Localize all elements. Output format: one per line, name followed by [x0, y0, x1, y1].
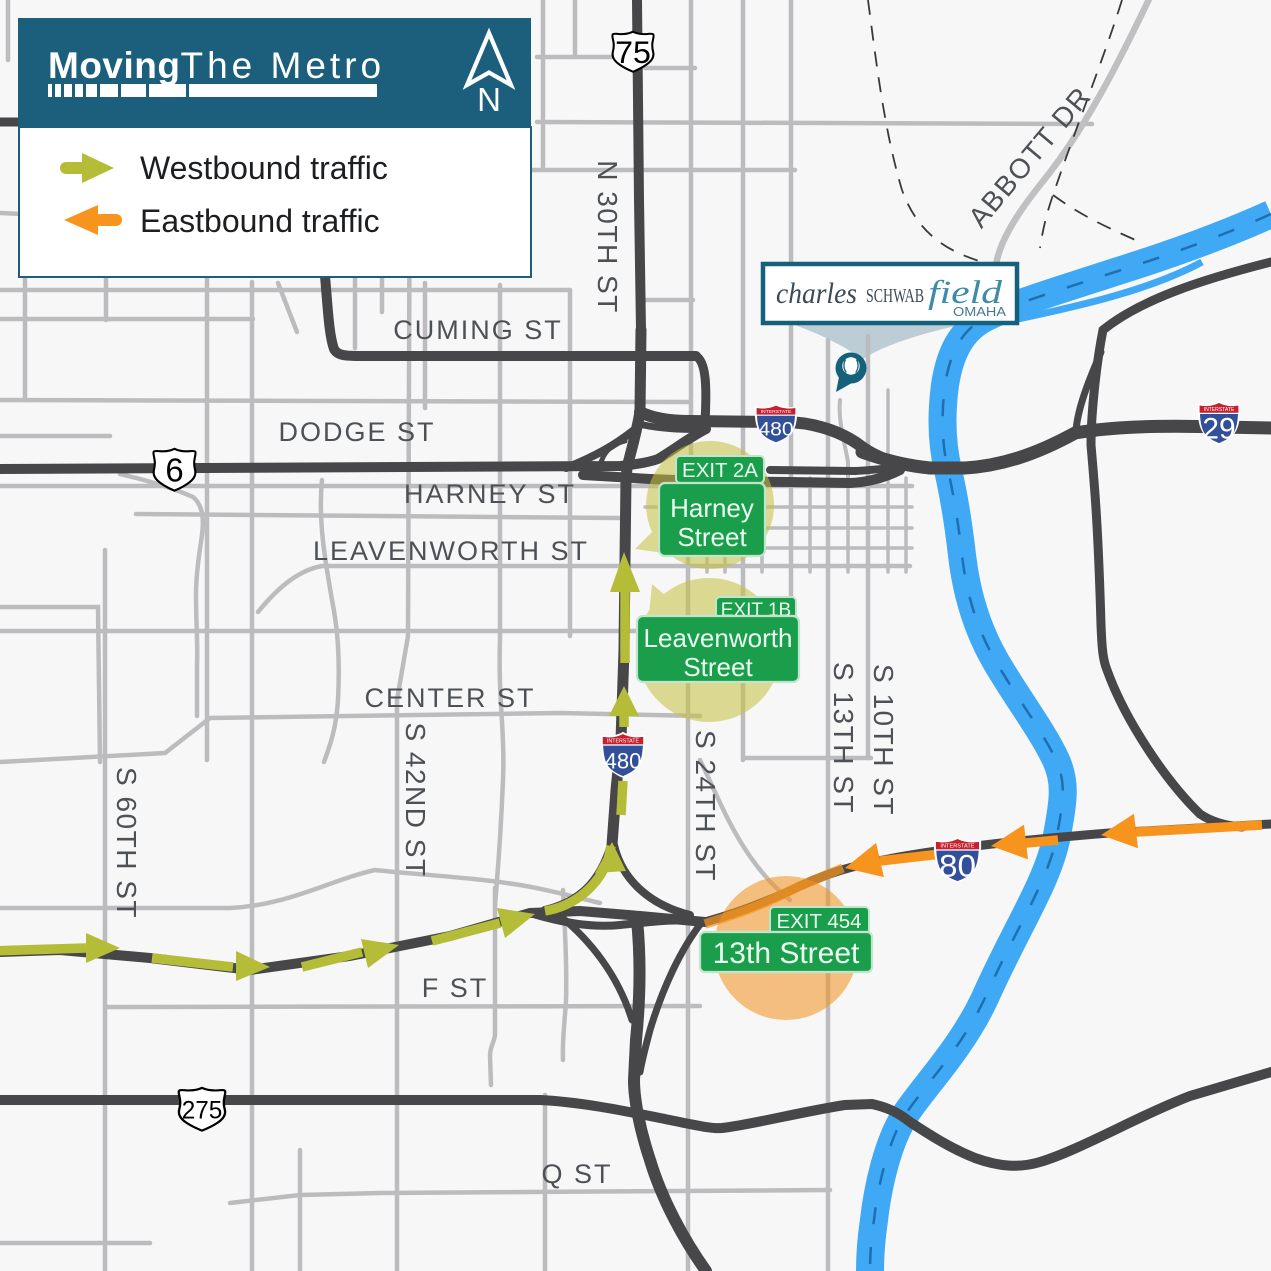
- svg-text:HARNEY ST: HARNEY ST: [404, 479, 576, 509]
- svg-text:DODGE ST: DODGE ST: [278, 417, 435, 447]
- svg-text:13th Street: 13th Street: [713, 937, 860, 970]
- svg-text:EXIT 454: EXIT 454: [776, 910, 861, 933]
- svg-text:OMAHA: OMAHA: [953, 304, 1006, 319]
- svg-text:S 10TH ST: S 10TH ST: [868, 664, 899, 816]
- svg-text:Street: Street: [677, 522, 747, 552]
- svg-text:S 60TH ST: S 60TH ST: [111, 767, 142, 919]
- svg-text:480: 480: [758, 419, 793, 440]
- svg-text:29: 29: [1202, 413, 1235, 446]
- svg-text:275: 275: [182, 1096, 223, 1125]
- svg-text:Q ST: Q ST: [541, 1159, 612, 1189]
- svg-text:SCHWAB: SCHWAB: [866, 285, 924, 307]
- svg-text:S 13TH ST: S 13TH ST: [828, 662, 859, 814]
- svg-text:S 42ND ST: S 42ND ST: [400, 722, 431, 877]
- svg-text:N 30TH ST: N 30TH ST: [592, 160, 623, 314]
- svg-text:MovingThe Metro: MovingThe Metro: [48, 45, 385, 86]
- svg-text:Leavenworth: Leavenworth: [644, 623, 793, 653]
- svg-text:charles: charles: [776, 277, 857, 310]
- svg-text:Street: Street: [683, 652, 753, 682]
- svg-text:S 24TH ST: S 24TH ST: [690, 730, 721, 882]
- svg-text:Harney: Harney: [670, 493, 754, 523]
- svg-text:N: N: [477, 81, 501, 118]
- svg-text:6: 6: [165, 452, 183, 489]
- svg-text:F ST: F ST: [422, 973, 489, 1003]
- svg-text:480: 480: [605, 748, 642, 773]
- svg-text:CUMING ST: CUMING ST: [393, 315, 563, 345]
- svg-text:75: 75: [615, 35, 651, 71]
- svg-text:Westbound traffic: Westbound traffic: [140, 150, 388, 186]
- svg-text:EXIT 2A: EXIT 2A: [682, 459, 758, 482]
- svg-text:Eastbound traffic: Eastbound traffic: [140, 203, 380, 239]
- svg-text:80: 80: [939, 848, 976, 883]
- svg-text:LEAVENWORTH ST: LEAVENWORTH ST: [313, 536, 589, 566]
- svg-text:CENTER ST: CENTER ST: [364, 683, 535, 713]
